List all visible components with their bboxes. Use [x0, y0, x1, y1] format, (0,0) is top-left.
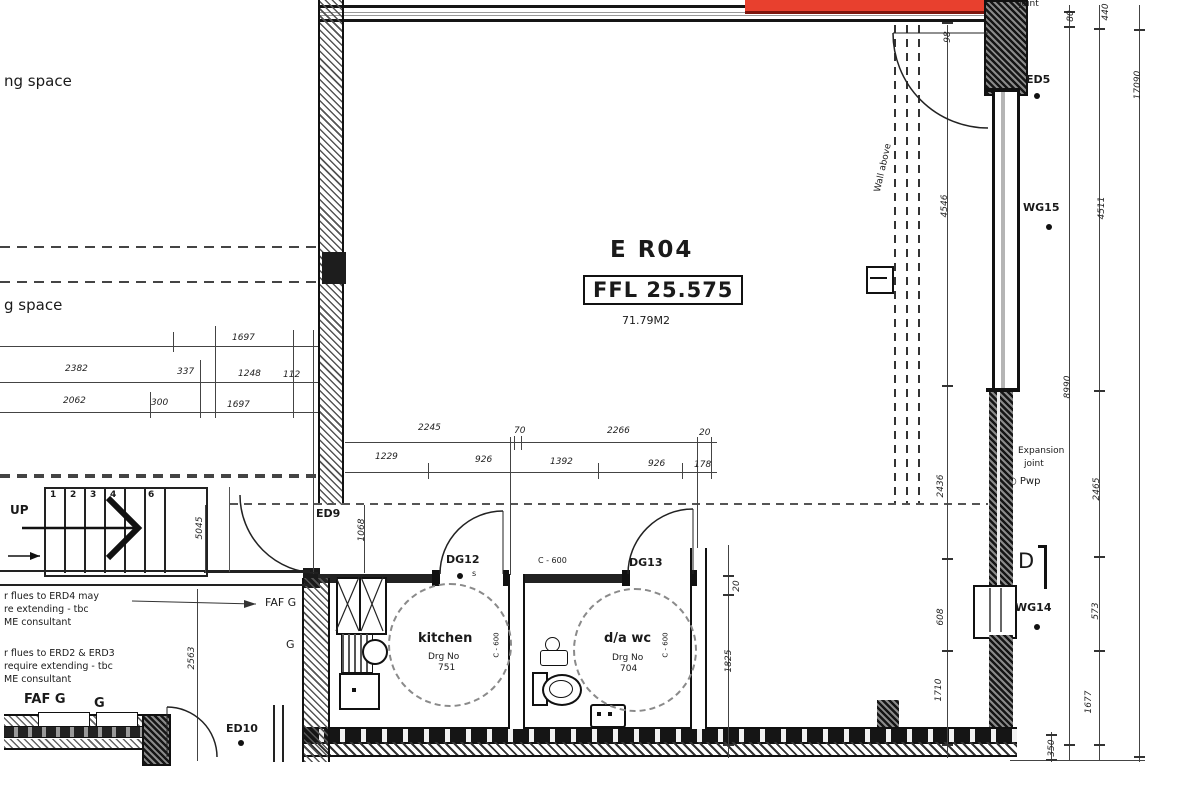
arcs-overlay — [0, 0, 1200, 785]
door-swing-dg13 — [628, 509, 693, 574]
door-swing-ed9 — [240, 495, 318, 573]
note-leader-head — [244, 600, 256, 608]
appliance-x-lines — [336, 577, 383, 631]
door-swing-dg12 — [440, 511, 503, 574]
note-leader-line — [132, 601, 256, 604]
door-swing-ed5 — [893, 33, 988, 128]
floor-plan: E R04 FFL 25.575 71.79M2 UP 169723823371… — [0, 0, 1200, 785]
door-swing-ed10 — [167, 707, 217, 757]
stair-arrow-2-head — [30, 552, 40, 560]
